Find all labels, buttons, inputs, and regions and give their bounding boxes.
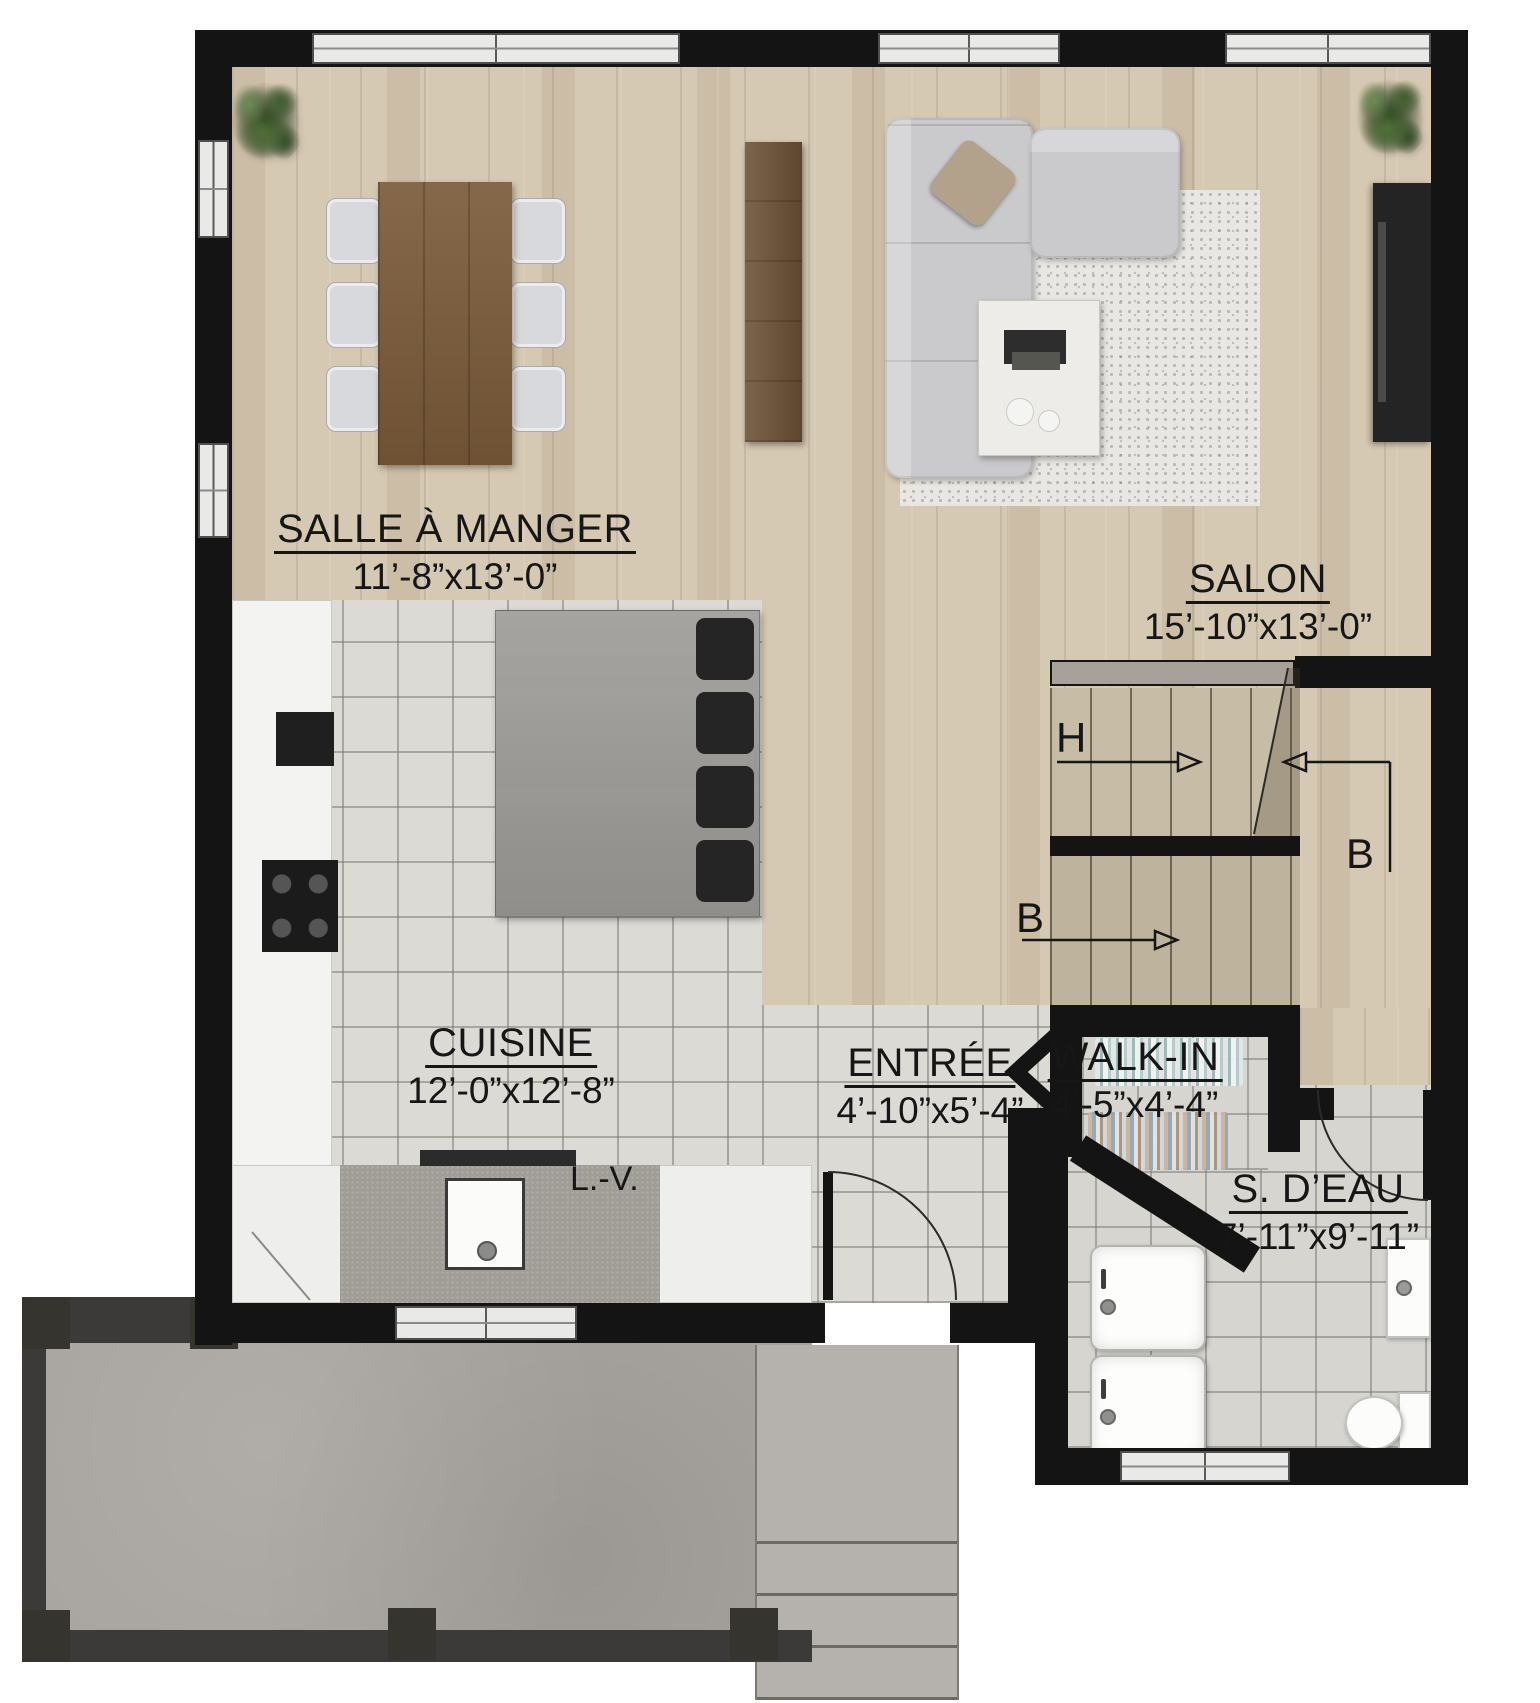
window-top-dining bbox=[312, 33, 680, 64]
window-left-upper bbox=[198, 140, 229, 238]
deck-post bbox=[388, 1608, 436, 1660]
deck-post bbox=[730, 1608, 778, 1660]
room-label-salon: SALON 15’-10”x13’-0” bbox=[1144, 558, 1372, 647]
dining-chair bbox=[510, 366, 566, 432]
dishwasher-label: L.-V. bbox=[570, 1160, 639, 1199]
coffee-table-books bbox=[1012, 352, 1060, 370]
wall-walkin-right bbox=[1268, 1037, 1300, 1152]
room-name: ENTRÉE bbox=[844, 1042, 1015, 1088]
room-dims: 4’-10”x5’-4” bbox=[836, 1091, 1023, 1130]
room-label-salle-a-manger: SALLE À MANGER 11’-8”x13’-0” bbox=[274, 508, 636, 597]
vanity-faucet bbox=[1396, 1280, 1412, 1296]
stair-banister bbox=[1050, 660, 1295, 686]
room-label-cuisine: CUISINE 12’-0”x12’-8” bbox=[407, 1022, 615, 1111]
stair-down-return-label: B bbox=[1346, 830, 1374, 878]
room-dims: 15’-10”x13’-0” bbox=[1144, 607, 1372, 646]
room-name: SALLE À MANGER bbox=[274, 508, 636, 554]
sideboard bbox=[745, 142, 802, 442]
room-dims: 12’-0”x12’-8” bbox=[407, 1071, 615, 1110]
island-stool bbox=[696, 840, 754, 902]
wall-stair-mid bbox=[1050, 836, 1300, 856]
wall-stair-banister-right bbox=[1295, 656, 1431, 688]
window-kitchen-sink bbox=[395, 1306, 577, 1340]
coffee-table-decor-ball bbox=[1038, 410, 1060, 432]
window-top-right bbox=[1225, 33, 1431, 64]
floor-plan: SALLE À MANGER 11’-8”x13’-0” SALON 15’-1… bbox=[0, 0, 1540, 1703]
tv-screen bbox=[1378, 222, 1386, 402]
dining-table bbox=[378, 182, 512, 465]
dining-chair bbox=[326, 366, 382, 432]
washer-knob bbox=[1100, 1299, 1116, 1315]
toilet-bowl bbox=[1345, 1396, 1403, 1450]
sofa-section-chaise bbox=[1030, 128, 1180, 258]
wall-bathroom-top-stub bbox=[1300, 1088, 1334, 1120]
kitchen-sink bbox=[445, 1178, 525, 1270]
room-dims: 7’-11”x9’-11” bbox=[1217, 1217, 1419, 1256]
deck-post bbox=[22, 1297, 70, 1349]
room-name: WALK-IN bbox=[1048, 1036, 1223, 1082]
wood-floor-stair-landing bbox=[1300, 1008, 1431, 1090]
stair-flight-upper bbox=[1050, 688, 1300, 836]
room-dims: 4’-5”x4’-4” bbox=[1048, 1085, 1223, 1124]
coffee-table bbox=[978, 300, 1100, 456]
room-label-walk-in: WALK-IN 4’-5”x4’-4” bbox=[1048, 1036, 1223, 1125]
dining-chair bbox=[510, 282, 566, 348]
island-stool bbox=[696, 618, 754, 680]
window-sill-strip bbox=[420, 1150, 576, 1166]
washer bbox=[1090, 1245, 1206, 1351]
dryer-knob bbox=[1100, 1409, 1116, 1425]
window-left-lower bbox=[198, 443, 229, 538]
dryer bbox=[1090, 1355, 1206, 1461]
wall-walkin-top bbox=[1050, 1005, 1300, 1037]
stair-flight-lower bbox=[1050, 856, 1300, 1005]
deck-rail-left bbox=[22, 1297, 46, 1662]
window-bathroom bbox=[1120, 1451, 1290, 1482]
stove-cooktop bbox=[262, 860, 338, 952]
window-top-salon bbox=[878, 33, 1060, 64]
stair-up-label: H bbox=[1056, 714, 1086, 762]
room-dims: 11’-8”x13’-0” bbox=[274, 557, 636, 596]
stair-down-label: B bbox=[1016, 894, 1044, 942]
room-label-entree: ENTRÉE 4’-10”x5’-4” bbox=[836, 1042, 1023, 1131]
coffee-table-decor-ball bbox=[1006, 398, 1034, 426]
room-name: CUISINE bbox=[425, 1022, 597, 1068]
deck-post bbox=[22, 1610, 70, 1662]
dining-chair bbox=[326, 282, 382, 348]
room-name: SALON bbox=[1186, 558, 1330, 604]
wall-right bbox=[1431, 30, 1468, 1485]
room-name: S. D’EAU bbox=[1229, 1168, 1408, 1214]
wall-bathroom-left bbox=[1035, 1108, 1068, 1485]
deck-surface bbox=[28, 1340, 812, 1632]
entry-steps-treads bbox=[757, 1495, 957, 1700]
washer-slot bbox=[1101, 1269, 1106, 1289]
island-stool bbox=[696, 692, 754, 754]
dining-chair bbox=[510, 198, 566, 264]
room-label-s-deau: S. D’EAU 7’-11”x9’-11” bbox=[1217, 1168, 1419, 1257]
dining-chair bbox=[326, 198, 382, 264]
wall-oven bbox=[276, 712, 334, 766]
dryer-slot bbox=[1101, 1379, 1106, 1399]
island-stool bbox=[696, 766, 754, 828]
